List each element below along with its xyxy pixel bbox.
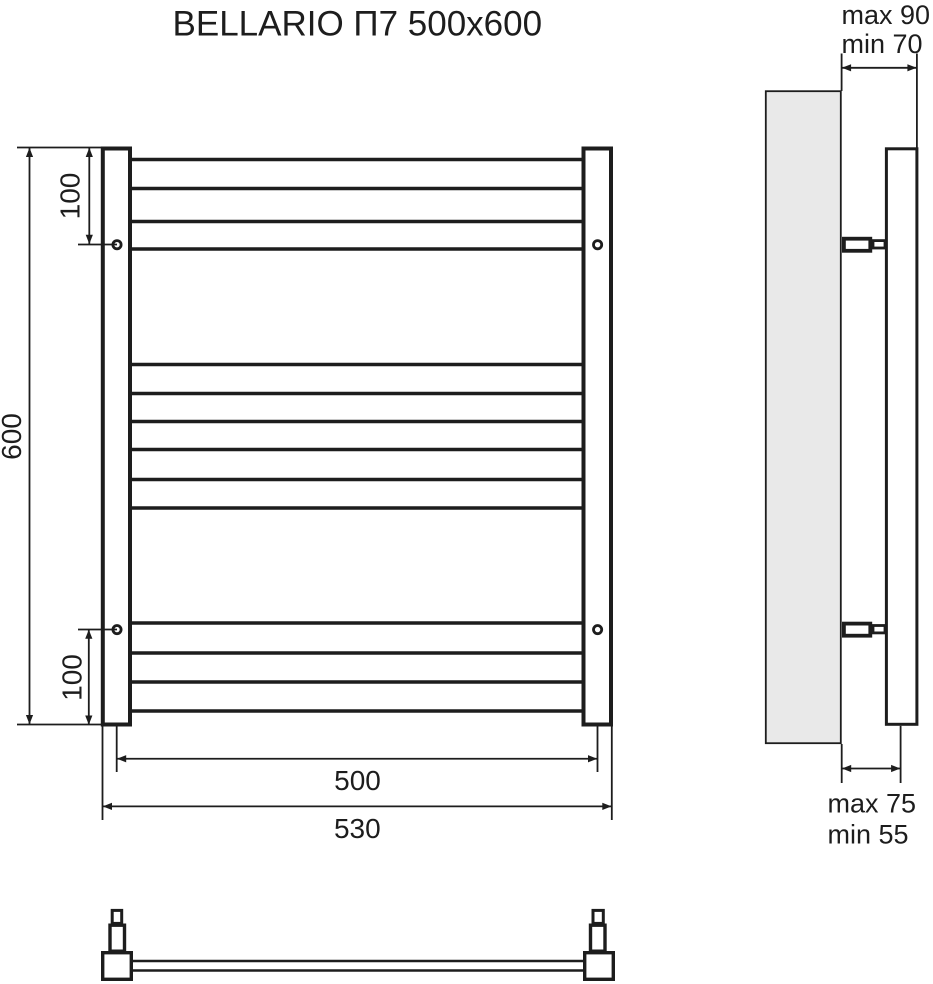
svg-text:100: 100 [55,173,86,220]
svg-text:100: 100 [57,654,88,701]
svg-text:max 90: max 90 [842,0,931,30]
svg-text:600: 600 [0,413,27,460]
svg-text:min 70: min 70 [842,29,923,59]
svg-text:500: 500 [334,765,381,796]
svg-text:min 55: min 55 [828,820,909,850]
svg-text:BELLARIO П7 500x600: BELLARIO П7 500x600 [173,5,543,44]
svg-text:530: 530 [334,813,381,844]
svg-text:max 75: max 75 [828,789,917,819]
